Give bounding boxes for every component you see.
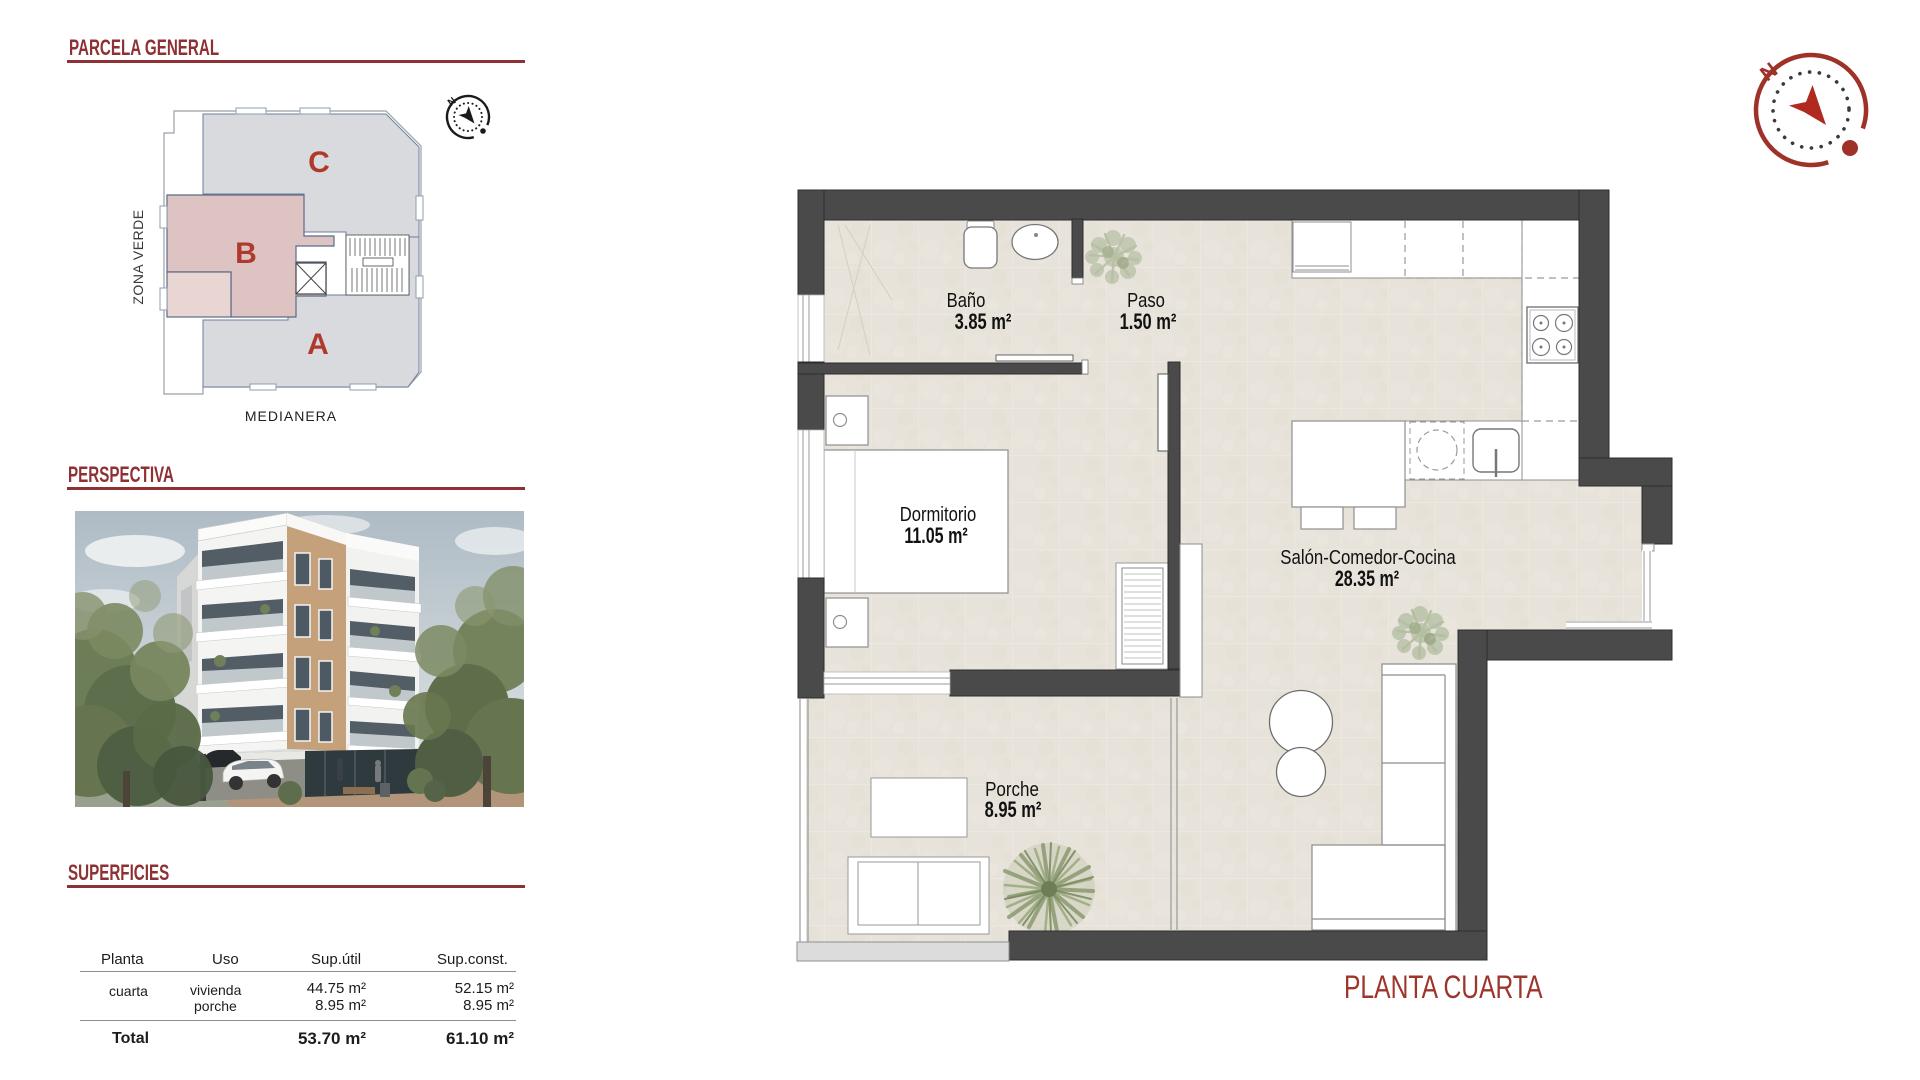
svg-text:Baño: Baño	[947, 289, 986, 312]
svg-text:N: N	[446, 96, 458, 109]
svg-text:B: B	[235, 237, 257, 270]
svg-text:Paso: Paso	[1127, 289, 1165, 312]
svg-text:Dormitorio: Dormitorio	[900, 503, 976, 526]
svg-text:3.85 m²: 3.85 m²	[955, 310, 1012, 335]
svg-text:MEDIANERA: MEDIANERA	[245, 408, 337, 424]
svg-text:A: A	[307, 328, 329, 361]
svg-text:N: N	[1756, 58, 1782, 85]
svg-text:11.05 m²: 11.05 m²	[904, 525, 967, 549]
svg-text:8.95 m²: 8.95 m²	[985, 798, 1042, 823]
svg-text:28.35 m²: 28.35 m²	[1335, 568, 1399, 592]
svg-text:1.50 m²: 1.50 m²	[1120, 310, 1177, 335]
svg-text:C: C	[308, 146, 330, 179]
svg-text:ZONA VERDE: ZONA VERDE	[130, 209, 146, 304]
svg-text:Salón-Comedor-Cocina: Salón-Comedor-Cocina	[1280, 546, 1456, 569]
